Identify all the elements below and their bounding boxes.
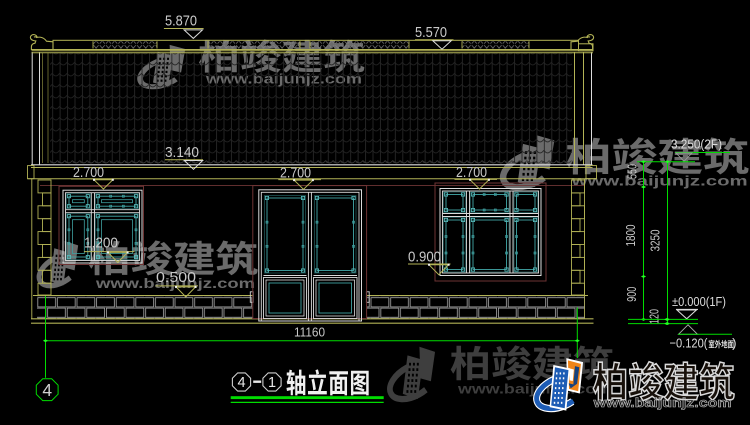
svg-text:2.700: 2.700 bbox=[456, 164, 487, 181]
svg-text:5.870: 5.870 bbox=[165, 12, 197, 29]
svg-text:120: 120 bbox=[647, 309, 662, 324]
svg-text:1.200: 1.200 bbox=[84, 234, 118, 251]
svg-text:550: 550 bbox=[625, 164, 640, 179]
svg-text:±0.000(1F): ±0.000(1F) bbox=[672, 294, 726, 309]
svg-text:): ) bbox=[732, 336, 736, 351]
svg-text:4: 4 bbox=[42, 380, 52, 400]
svg-text:3.140: 3.140 bbox=[165, 144, 199, 161]
svg-text:0.500: 0.500 bbox=[156, 269, 196, 286]
svg-text:0.900: 0.900 bbox=[408, 249, 441, 266]
svg-text:2.700: 2.700 bbox=[280, 165, 311, 182]
svg-text:−0.120(: −0.120( bbox=[670, 336, 708, 351]
svg-text:www.baijunjz.com: www.baijunjz.com bbox=[592, 395, 731, 410]
svg-text:3250: 3250 bbox=[648, 230, 663, 252]
svg-text:1: 1 bbox=[268, 375, 276, 391]
svg-text:900: 900 bbox=[624, 287, 639, 302]
svg-text:3.250(2F): 3.250(2F) bbox=[671, 137, 722, 152]
svg-text:5.570: 5.570 bbox=[415, 24, 447, 41]
svg-text:4: 4 bbox=[237, 375, 245, 391]
svg-text:1800: 1800 bbox=[623, 225, 638, 247]
svg-text:11160: 11160 bbox=[294, 326, 325, 340]
